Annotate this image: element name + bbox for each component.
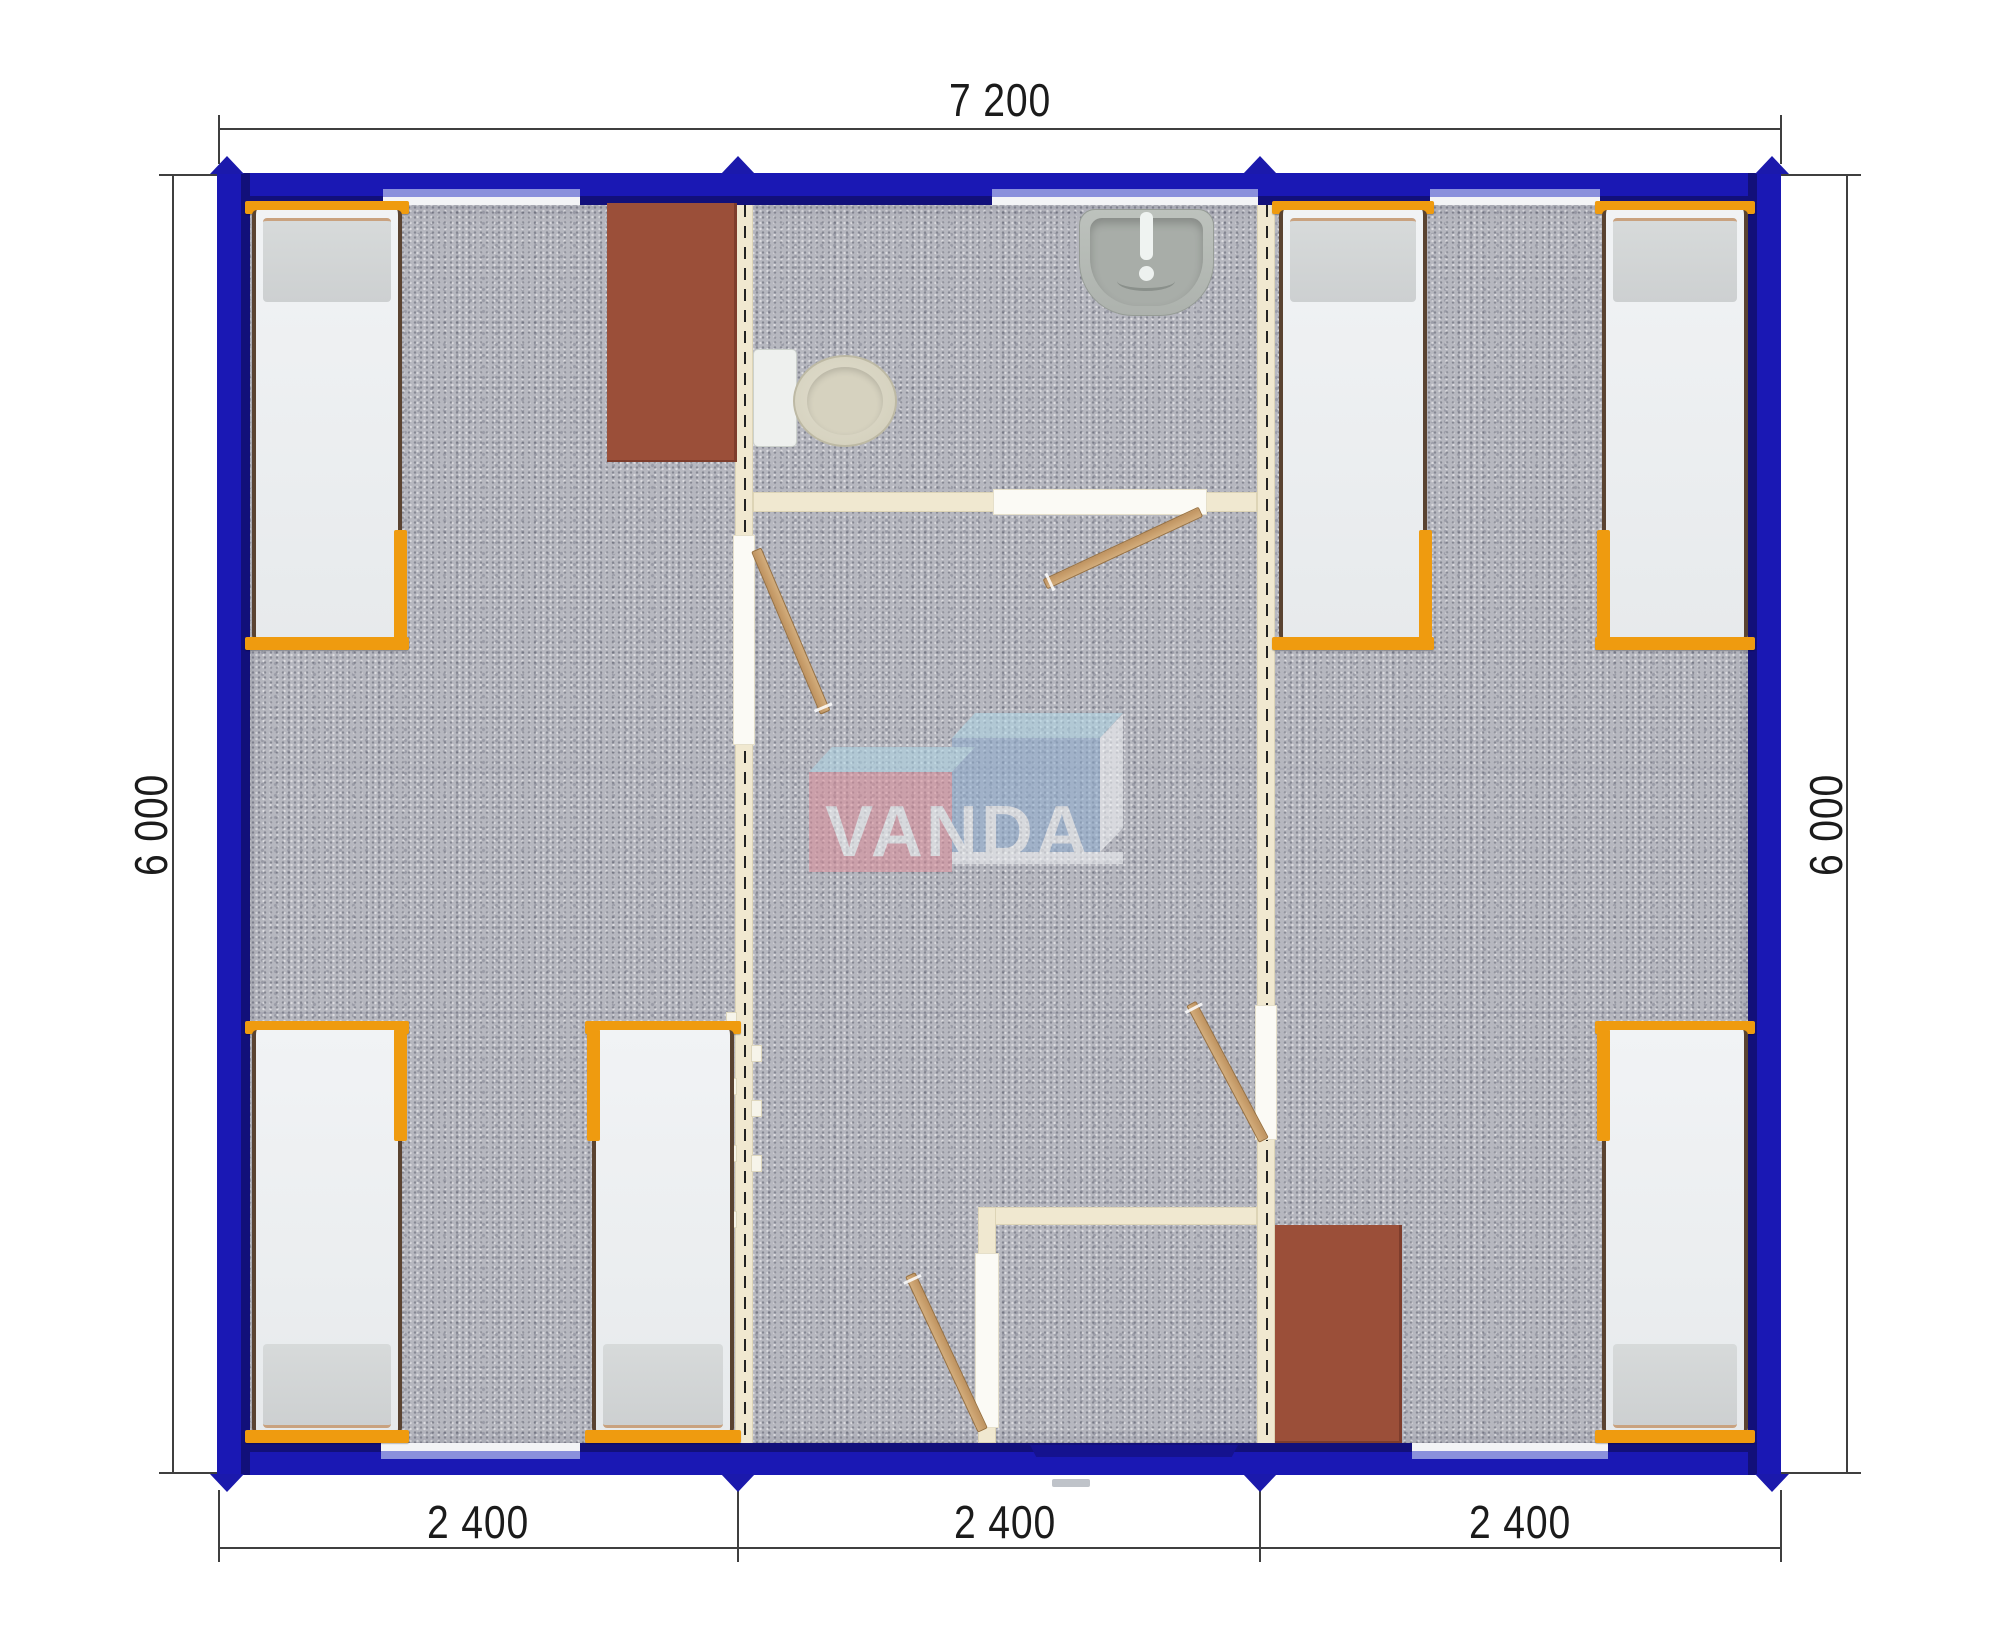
dimension-label-bottom-module-3: 2 400 xyxy=(1435,1496,1605,1548)
dimension-label-bottom-module-2: 2 400 xyxy=(920,1496,1090,1548)
wall-bracket xyxy=(751,1155,762,1172)
bed-frame-rail xyxy=(585,1430,741,1443)
window-glass xyxy=(1412,1451,1608,1459)
dimension-label-bottom-module-1: 2 400 xyxy=(393,1496,563,1548)
window-sill xyxy=(381,1443,580,1451)
floor-seam xyxy=(250,1012,1748,1014)
logo-white-edge-right xyxy=(1100,714,1123,852)
bed-pillow xyxy=(1613,1344,1737,1428)
floor-plan-canvas: 7 200 2 400 2 400 2 400 6 000 6 000 VAND… xyxy=(0,0,2000,1648)
bed xyxy=(245,1021,409,1443)
bed-frame-post xyxy=(587,1029,600,1141)
brand-name-text: VANDA xyxy=(825,792,1091,872)
window-sill xyxy=(1412,1443,1608,1451)
basin-curve xyxy=(1117,271,1175,291)
bed-frame-post xyxy=(1597,1029,1610,1141)
entrance-door xyxy=(1030,1445,1238,1457)
entrance-step xyxy=(1052,1479,1090,1487)
door-opening-bathroom xyxy=(993,489,1207,515)
window-sill xyxy=(383,197,580,205)
module-joint-axis xyxy=(1266,205,1268,1443)
window-glass xyxy=(383,189,580,197)
bed-frame-rail xyxy=(1595,1430,1755,1443)
faucet-icon xyxy=(1140,212,1153,260)
bed xyxy=(245,201,409,650)
window-sill xyxy=(992,197,1258,205)
bed-pillow xyxy=(1613,218,1737,302)
logo-red-cube-top xyxy=(809,747,975,772)
bed-frame-rail xyxy=(1272,637,1434,650)
toilet-tank xyxy=(753,349,797,447)
window-glass xyxy=(1430,189,1600,197)
toilet xyxy=(753,345,903,451)
bed-pillow xyxy=(263,1344,391,1428)
desk xyxy=(1275,1225,1402,1443)
bed-pillow xyxy=(263,218,391,302)
desk xyxy=(607,203,737,462)
dimension-label-top-width: 7 200 xyxy=(915,74,1085,126)
bed xyxy=(585,1021,741,1443)
wall-bracket xyxy=(751,1100,762,1117)
toilet-seat xyxy=(807,367,883,435)
sink xyxy=(1079,209,1214,316)
window-sill xyxy=(1430,197,1600,205)
door-opening-left-room xyxy=(733,535,755,745)
module-joint-axis xyxy=(744,205,746,1443)
dimension-label-left-height: 6 000 xyxy=(125,723,177,927)
bed xyxy=(1272,201,1434,650)
brand-watermark-logo: VANDA xyxy=(795,698,1125,893)
bed-frame-rail xyxy=(245,1430,409,1443)
bed xyxy=(1595,1021,1755,1443)
dimension-label-right-height: 6 000 xyxy=(1800,723,1852,927)
bed-pillow xyxy=(1290,218,1416,302)
bed xyxy=(1595,201,1755,650)
bed-pillow xyxy=(603,1344,723,1428)
window-glass xyxy=(992,189,1258,197)
window-glass xyxy=(381,1451,580,1459)
bed-frame-post xyxy=(394,530,407,642)
bed-frame-post xyxy=(1597,530,1610,642)
vestibule-wall-horizontal xyxy=(978,1207,1257,1225)
bed-frame-post xyxy=(1419,530,1432,642)
logo-blue-cube-top xyxy=(952,713,1123,738)
bed-frame-rail xyxy=(1595,637,1755,650)
wall-bracket xyxy=(751,1045,762,1062)
bed-frame-rail xyxy=(245,637,409,650)
door-opening-vestibule xyxy=(975,1253,999,1428)
bed-frame-post xyxy=(394,1029,407,1141)
